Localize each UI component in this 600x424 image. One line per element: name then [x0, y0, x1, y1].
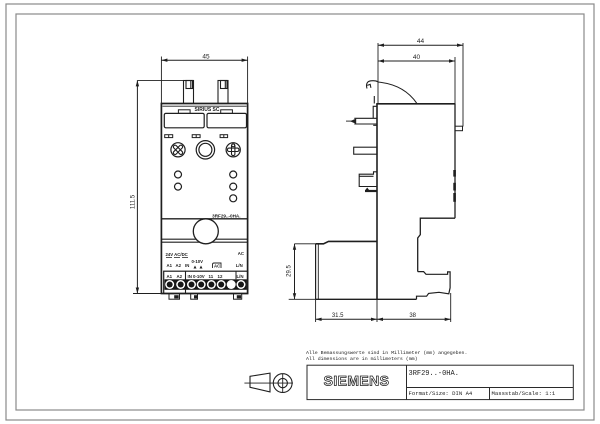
svg-text:31.5: 31.5 [332, 313, 344, 319]
svg-text:L/N: L/N [236, 263, 243, 268]
svg-text:38: 38 [409, 313, 416, 319]
svg-text:111.5: 111.5 [131, 194, 137, 209]
svg-text:0-10V: 0-10V [193, 274, 205, 279]
svg-text:A2: A2 [176, 263, 182, 268]
svg-text:Alle Bemassungswerte sind in M: Alle Bemassungswerte sind in Millimeter … [306, 350, 467, 356]
svg-text:44: 44 [417, 38, 425, 45]
svg-text:Massstab/Scale: 1:1: Massstab/Scale: 1:1 [492, 390, 556, 397]
svg-text:All dimensions are in millimet: All dimensions are in millimeters (mm) [306, 356, 418, 362]
svg-text:IN: IN [185, 263, 189, 268]
svg-text:0-10V: 0-10V [192, 259, 204, 264]
svg-text:40: 40 [413, 54, 421, 61]
svg-text:AC: AC [214, 264, 220, 269]
svg-text:29.5: 29.5 [287, 265, 293, 277]
svg-text:A2: A2 [177, 274, 183, 279]
svg-text:SIRIUS SC: SIRIUS SC [194, 107, 219, 113]
svg-text:AC: AC [238, 251, 244, 256]
svg-text:A1: A1 [167, 274, 173, 279]
svg-text:L/N: L/N [237, 274, 244, 279]
svg-text:SIEMENS: SIEMENS [324, 373, 390, 389]
svg-text:IN: IN [188, 274, 192, 279]
svg-text:3RF29..-0HA.: 3RF29..-0HA. [212, 214, 240, 219]
svg-text:Format/Size: DIN A4: Format/Size: DIN A4 [409, 390, 473, 397]
svg-text:3RF29..-0HA.: 3RF29..-0HA. [409, 370, 459, 378]
svg-text:12: 12 [218, 274, 223, 279]
svg-text:24V AC/DC: 24V AC/DC [166, 252, 188, 257]
svg-text:11: 11 [209, 274, 214, 279]
svg-text:45: 45 [202, 53, 210, 60]
svg-text:A1: A1 [167, 263, 173, 268]
